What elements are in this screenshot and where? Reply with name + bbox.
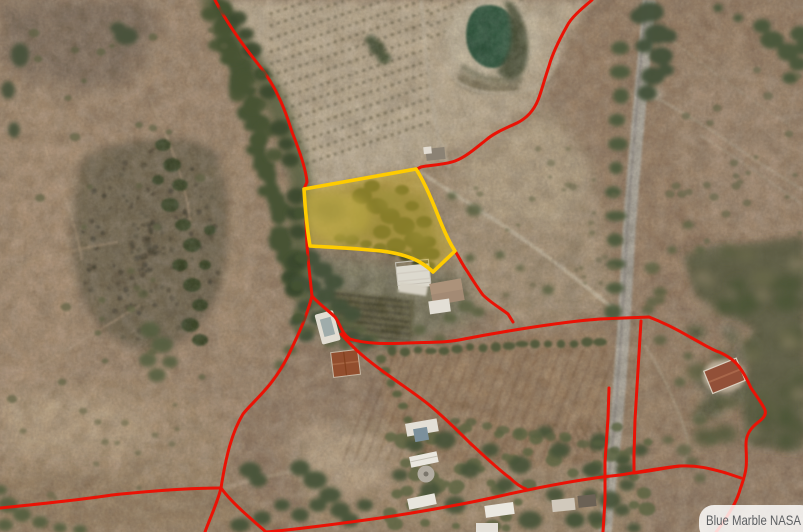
svg-text:Blue Marble NASA: Blue Marble NASA xyxy=(706,512,802,528)
